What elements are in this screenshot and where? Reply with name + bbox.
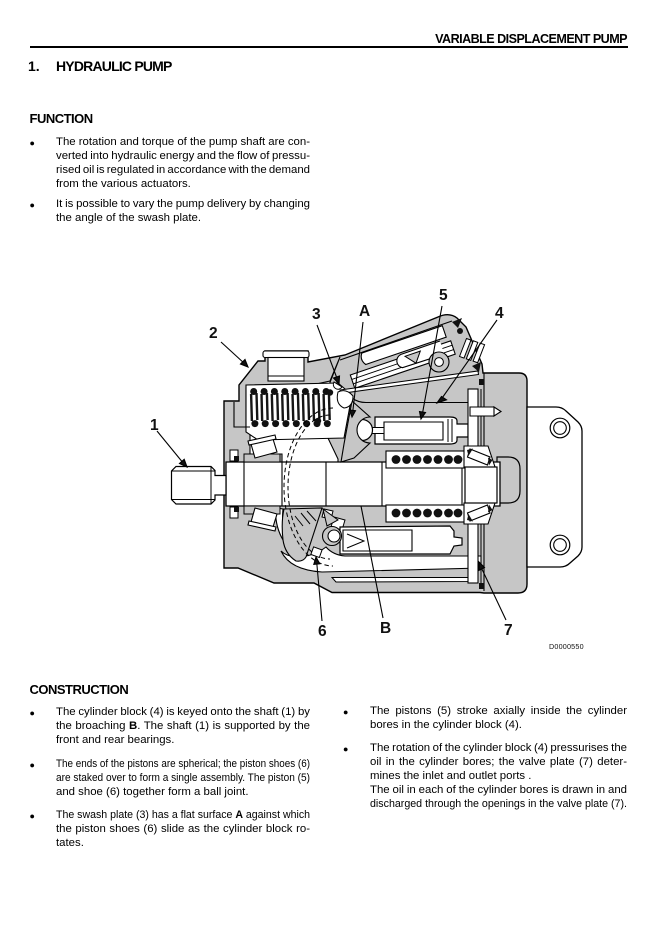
svg-text:7: 7 (504, 622, 513, 639)
svg-text:D0000550: D0000550 (549, 642, 584, 651)
svg-text:3: 3 (312, 306, 321, 323)
svg-text:2: 2 (209, 325, 218, 342)
svg-text:6: 6 (318, 623, 327, 640)
svg-text:1: 1 (150, 417, 159, 434)
svg-text:4: 4 (495, 305, 504, 322)
svg-text:B: B (380, 620, 391, 637)
svg-text:A: A (359, 303, 370, 320)
svg-text:5: 5 (439, 287, 448, 304)
